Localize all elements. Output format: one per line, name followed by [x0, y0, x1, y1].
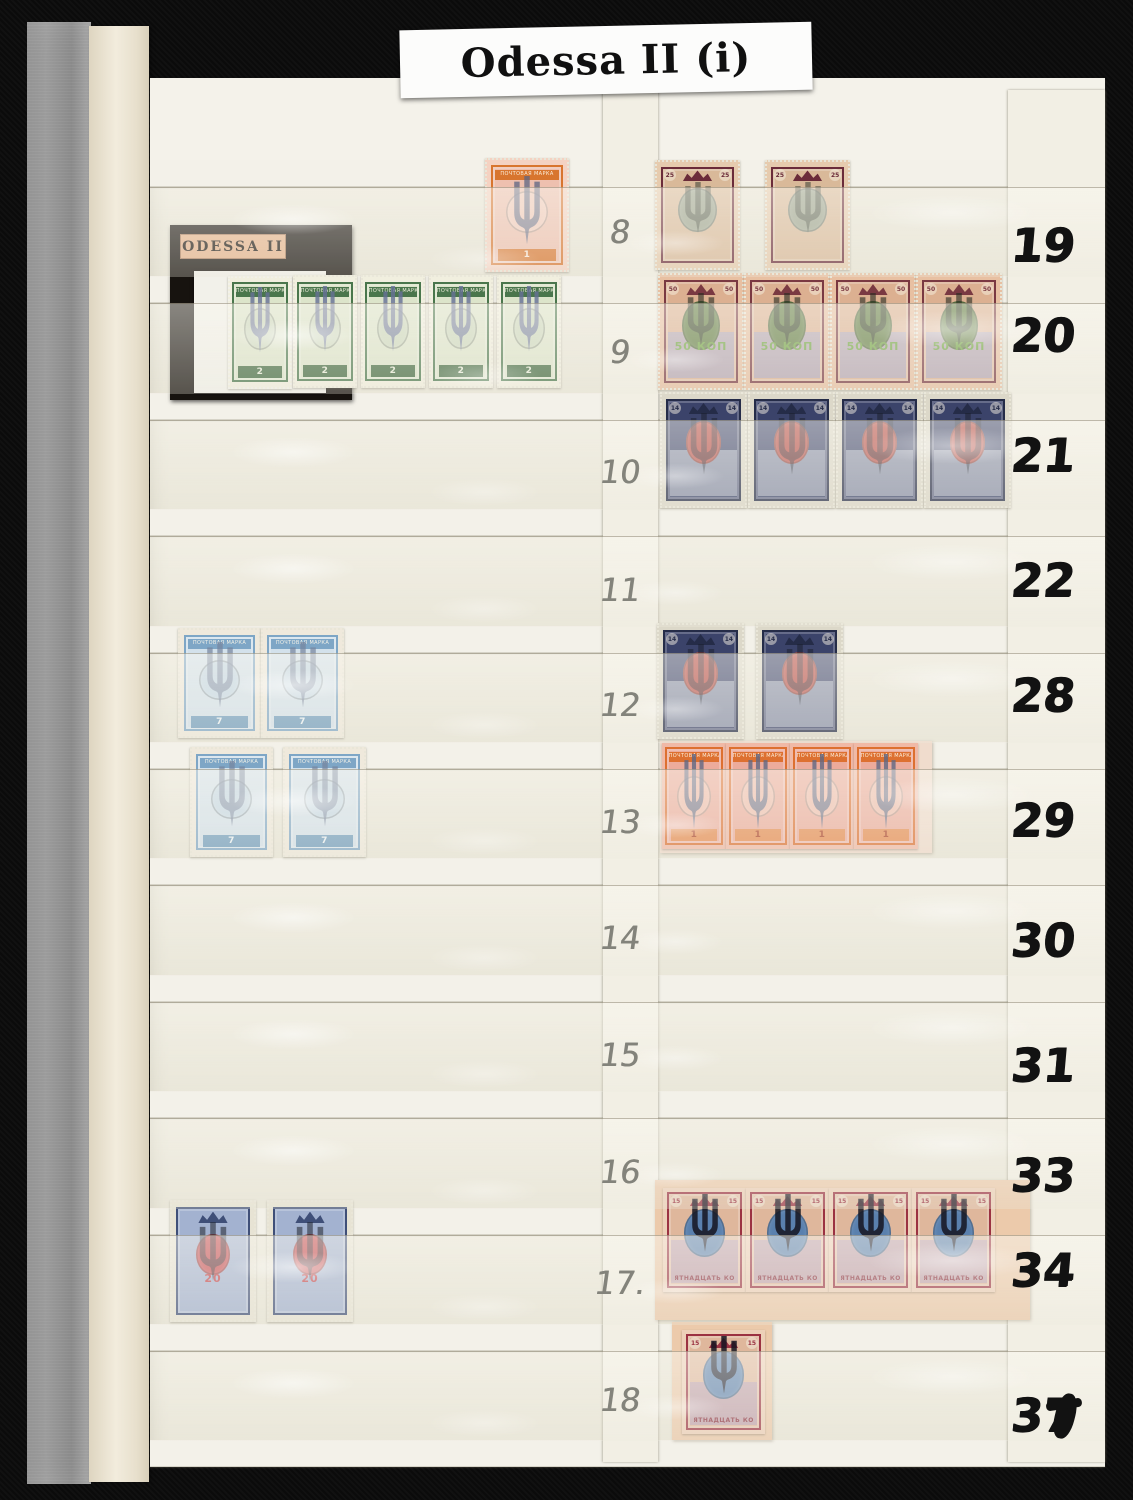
- stamp-value-tablet: ПЯТНАДЦАТЬ КОП: [758, 1273, 818, 1284]
- trident-overprint-icon: [687, 413, 720, 477]
- corner-value: 15: [893, 1195, 905, 1207]
- trident-overprint-icon: [204, 642, 236, 710]
- stamp: ПОЧТОВАЯ МАРКА7: [190, 747, 273, 857]
- stamp: 1515ПЯТНАДЦАТЬ КОП: [682, 1330, 765, 1434]
- odessa-card-label: ODESSA II: [180, 234, 286, 259]
- odessa-card-label-text: ODESSA II: [182, 239, 284, 255]
- corner-value: 15: [670, 1195, 682, 1207]
- trident-overprint-icon: [951, 413, 984, 477]
- trident-overprint-icon: [855, 1194, 887, 1254]
- stamp: ПОЧТОВАЯ МАРКА7: [283, 747, 366, 857]
- trident-overprint-icon: [449, 286, 473, 354]
- trident-overprint-icon: [682, 754, 706, 832]
- corner-value: 50: [667, 283, 679, 295]
- stamp: ПОЧТОВАЯ МАРКА2: [429, 275, 493, 388]
- corner-value: 14: [990, 402, 1002, 414]
- corner-value: 50: [723, 283, 735, 295]
- stamp-value-tablet: ПЯТНАДЦАТЬ КОП: [924, 1273, 984, 1284]
- corner-value: 14: [814, 402, 826, 414]
- corner-value: 25: [829, 169, 841, 181]
- stamp-value-tablet: 1: [498, 249, 556, 261]
- stamp-value-tablet: 7: [274, 716, 331, 728]
- stamps-row-28: 14141414: [657, 623, 843, 739]
- trident-overprint-icon: [772, 1194, 804, 1254]
- corner-value: 14: [757, 402, 769, 414]
- stamp: 1414: [657, 623, 744, 739]
- stamps-row-21: 1414141414141414: [660, 392, 1011, 508]
- corner-value: 50: [809, 283, 821, 295]
- stamp: 1414: [836, 392, 923, 508]
- stamp: ПОЧТОВАЯ МАРКА2: [293, 275, 357, 388]
- stamps-row-8: ПОЧТОВАЯ МАРКА1: [485, 158, 569, 272]
- corner-value: 15: [746, 1337, 758, 1349]
- stamps-row-9: ПОЧТОВАЯ МАРКА2ПОЧТОВАЯ МАРКА2ПОЧТОВАЯ М…: [293, 275, 561, 388]
- stamp: ПОЧТОВАЯ МАРКА7: [261, 628, 344, 738]
- trident-overprint-icon: [874, 754, 898, 832]
- corner-value: 50: [753, 283, 765, 295]
- stamp: 1515ПЯТНАДЦАТЬ КОП: [829, 1188, 912, 1292]
- corner-value: 15: [753, 1195, 765, 1207]
- corner-value: 50: [839, 283, 851, 295]
- trident-overprint-icon: [216, 761, 248, 829]
- corner-value: 14: [723, 633, 735, 645]
- glassine-strip-cream: [89, 26, 149, 1482]
- stamps-row-20: 505050 КОП505050 КОП505050 КОП505050 КОП: [658, 273, 1002, 390]
- stamp: 20: [267, 1200, 353, 1322]
- imperial-crest: [683, 170, 712, 181]
- center-number-strip: [603, 90, 658, 1462]
- stamp-value-tablet: 2: [238, 366, 282, 378]
- corner-value: 25: [664, 169, 676, 181]
- trident-overprint-icon: [294, 1222, 327, 1283]
- stamp: 1414: [756, 623, 843, 739]
- corner-value: 14: [765, 633, 777, 645]
- trident-overprint-icon: [863, 413, 896, 477]
- stamp: ПОЧТОВАЯ МАРКА1: [726, 743, 790, 849]
- corner-value: 15: [689, 1337, 701, 1349]
- stamp: ПОЧТОВАЯ МАРКА1: [854, 743, 918, 849]
- stamp: ПОЧТОВАЯ МАРКА2: [497, 275, 561, 388]
- stamp: 505050 КОП: [744, 273, 830, 390]
- corner-value: 14: [902, 402, 914, 414]
- corner-value: 50: [895, 283, 907, 295]
- stamp-value-tablet: 2: [507, 365, 551, 377]
- stamp: 1414: [924, 392, 1011, 508]
- stamps-row-37: 1515ПЯТНАДЦАТЬ КОП: [682, 1330, 765, 1434]
- stamp: ПОЧТОВАЯ МАРКА1: [662, 743, 726, 849]
- stamp-value-tablet: 7: [296, 835, 353, 847]
- stamps-row-17: 2020: [170, 1200, 353, 1322]
- trident-overprint-icon: [197, 1222, 230, 1283]
- stamp: 2525: [655, 160, 740, 270]
- stamp: 1414: [748, 392, 835, 508]
- stamp: 505050 КОП: [830, 273, 916, 390]
- trident-overprint-icon: [708, 1336, 740, 1396]
- trident-overprint-icon: [783, 644, 816, 708]
- corner-value: 25: [774, 169, 786, 181]
- page-title-text: Odessa II (i): [460, 33, 751, 86]
- stamp-value-tablet: ПЯТНАДЦАТЬ КОП: [841, 1273, 901, 1284]
- stamps-row-12: ПОЧТОВАЯ МАРКА7ПОЧТОВАЯ МАРКА7: [178, 628, 344, 738]
- trident-overprint-icon: [771, 293, 804, 347]
- corner-value: 15: [727, 1195, 739, 1207]
- stamp: 1515ПЯТНАДЦАТЬ КОП: [912, 1188, 995, 1292]
- stamp-value-tablet: ПЯТНАДЦАТЬ КОП: [675, 1273, 735, 1284]
- corner-value: 15: [810, 1195, 822, 1207]
- stamp: 1414: [660, 392, 747, 508]
- trident-overprint-icon: [746, 754, 770, 832]
- stamp: ПОЧТОВАЯ МАРКА7: [178, 628, 261, 738]
- stock-page: ODESSA II ПОЧТОВАЯ МАРКА2 89101112131415…: [150, 78, 1105, 1462]
- stamp-value-tablet: 7: [191, 716, 248, 728]
- stamp: 505050 КОП: [658, 273, 744, 390]
- corner-value: 14: [822, 633, 834, 645]
- corner-value: 50: [981, 283, 993, 295]
- stockbook-photo: ODESSA II ПОЧТОВАЯ МАРКА2 89101112131415…: [0, 0, 1133, 1500]
- trident-overprint-icon: [943, 293, 976, 347]
- trident-overprint-icon: [511, 176, 543, 247]
- corner-value: 14: [845, 402, 857, 414]
- trident-overprint-icon: [287, 642, 319, 710]
- stamp: ПОЧТОВАЯ МАРКА1: [790, 743, 854, 849]
- stamps-row-33-34: 1515ПЯТНАДЦАТЬ КОП1515ПЯТНАДЦАТЬ КОП1515…: [663, 1188, 995, 1292]
- trident-overprint-icon: [517, 286, 541, 354]
- stamp: 505050 КОП: [916, 273, 1002, 390]
- trident-overprint-icon: [857, 293, 890, 347]
- trident-overprint-icon: [313, 286, 337, 354]
- stamps-row-13: ПОЧТОВАЯ МАРКА7ПОЧТОВАЯ МАРКА7: [190, 747, 366, 857]
- stamp: 20: [170, 1200, 256, 1322]
- page-title-label: Odessa II (i): [399, 22, 812, 99]
- stamp: ПОЧТОВАЯ МАРКА2: [361, 275, 425, 388]
- stamp: 2525: [765, 160, 850, 270]
- trident-overprint-icon: [682, 182, 714, 235]
- imperial-crest: [793, 170, 822, 181]
- glassine-strip-grey: [27, 22, 91, 1484]
- trident-overprint-icon: [689, 1194, 721, 1254]
- stamp-value-tablet: 2: [371, 365, 415, 377]
- stamp: ПОЧТОВАЯ МАРКА2: [228, 276, 292, 389]
- trident-overprint-icon: [685, 293, 718, 347]
- corner-value: 14: [669, 402, 681, 414]
- corner-value: 15: [919, 1195, 931, 1207]
- corner-value: 15: [976, 1195, 988, 1207]
- corner-value: 25: [719, 169, 731, 181]
- corner-value: 14: [933, 402, 945, 414]
- stamp: 1515ПЯТНАДЦАТЬ КОП: [663, 1188, 746, 1292]
- trident-overprint-icon: [309, 761, 341, 829]
- stamp-value-tablet: 2: [439, 365, 483, 377]
- trident-overprint-icon: [248, 287, 272, 355]
- trident-overprint-icon: [775, 413, 808, 477]
- trident-overprint-icon: [684, 644, 717, 708]
- stamp-value-tablet: 2: [303, 365, 347, 377]
- corner-value: 50: [925, 283, 937, 295]
- trident-overprint-icon: [810, 754, 834, 832]
- corner-value: 14: [666, 633, 678, 645]
- trident-overprint-icon: [792, 182, 824, 235]
- stamps-row-29: ПОЧТОВАЯ МАРКА1ПОЧТОВАЯ МАРКА1ПОЧТОВАЯ М…: [662, 743, 918, 849]
- stamp: 1515ПЯТНАДЦАТЬ КОП: [746, 1188, 829, 1292]
- stamp-value-tablet: ПЯТНАДЦАТЬ КОП: [694, 1415, 754, 1426]
- trident-overprint-icon: [938, 1194, 970, 1254]
- corner-value: 14: [726, 402, 738, 414]
- stamps-row-19: 25252525: [655, 160, 850, 270]
- corner-value: 15: [836, 1195, 848, 1207]
- stamp-value-tablet: 7: [203, 835, 260, 847]
- stamp: ПОЧТОВАЯ МАРКА1: [485, 158, 569, 272]
- trident-overprint-icon: [381, 286, 405, 354]
